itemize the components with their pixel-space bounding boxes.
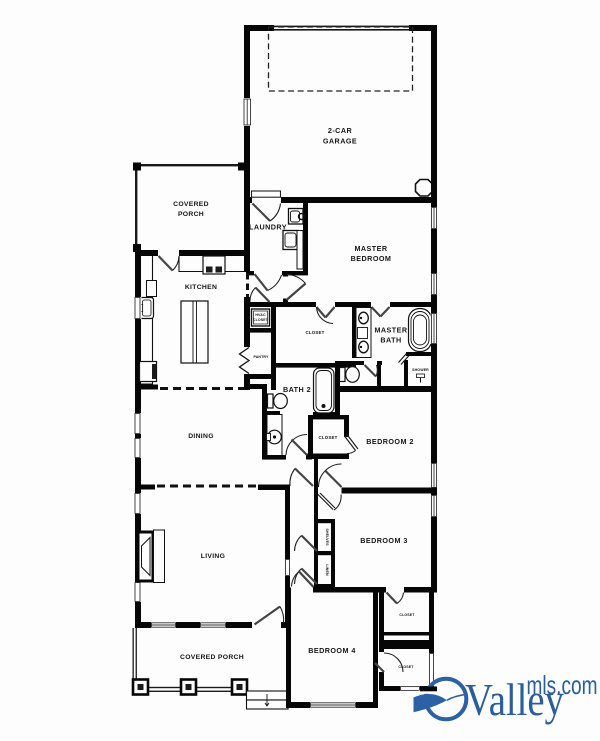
svg-text:CLOSET: CLOSET (253, 318, 269, 322)
svg-text:BATH: BATH (380, 336, 401, 345)
svg-text:COVERED: COVERED (173, 201, 209, 208)
svg-text:CLOSET: CLOSET (398, 665, 414, 669)
svg-text:BEDROOM 3: BEDROOM 3 (360, 536, 408, 545)
svg-text:MASTER: MASTER (354, 244, 387, 253)
svg-text:BEDROOM 2: BEDROOM 2 (366, 437, 414, 446)
svg-text:LINEN: LINEN (325, 564, 329, 576)
svg-text:BATH 2: BATH 2 (283, 385, 311, 394)
svg-text:KITCHEN: KITCHEN (185, 284, 217, 291)
svg-text:SHELVES: SHELVES (325, 528, 329, 546)
svg-text:GARAGE: GARAGE (323, 137, 357, 146)
svg-text:2-CAR: 2-CAR (328, 126, 353, 135)
svg-text:BEDROOM 4: BEDROOM 4 (308, 646, 356, 655)
svg-text:CLOSET: CLOSET (318, 435, 337, 440)
svg-text:BEDROOM: BEDROOM (351, 254, 392, 263)
svg-text:COVERED PORCH: COVERED PORCH (180, 654, 244, 661)
svg-text:MASTER: MASTER (374, 326, 407, 335)
svg-text:LAUNDRY: LAUNDRY (249, 223, 287, 232)
svg-text:PORCH: PORCH (178, 211, 204, 218)
svg-text:CLOSET: CLOSET (305, 330, 324, 335)
svg-text:HVAC: HVAC (255, 313, 266, 317)
svg-text:DINING: DINING (188, 433, 214, 440)
svg-text:LIVING: LIVING (201, 553, 225, 560)
svg-text:mls.com: mls.com (527, 670, 598, 700)
svg-text:SHOWER: SHOWER (412, 368, 429, 372)
svg-text:PANTRY: PANTRY (254, 355, 269, 359)
svg-text:CLOSET: CLOSET (399, 613, 415, 617)
